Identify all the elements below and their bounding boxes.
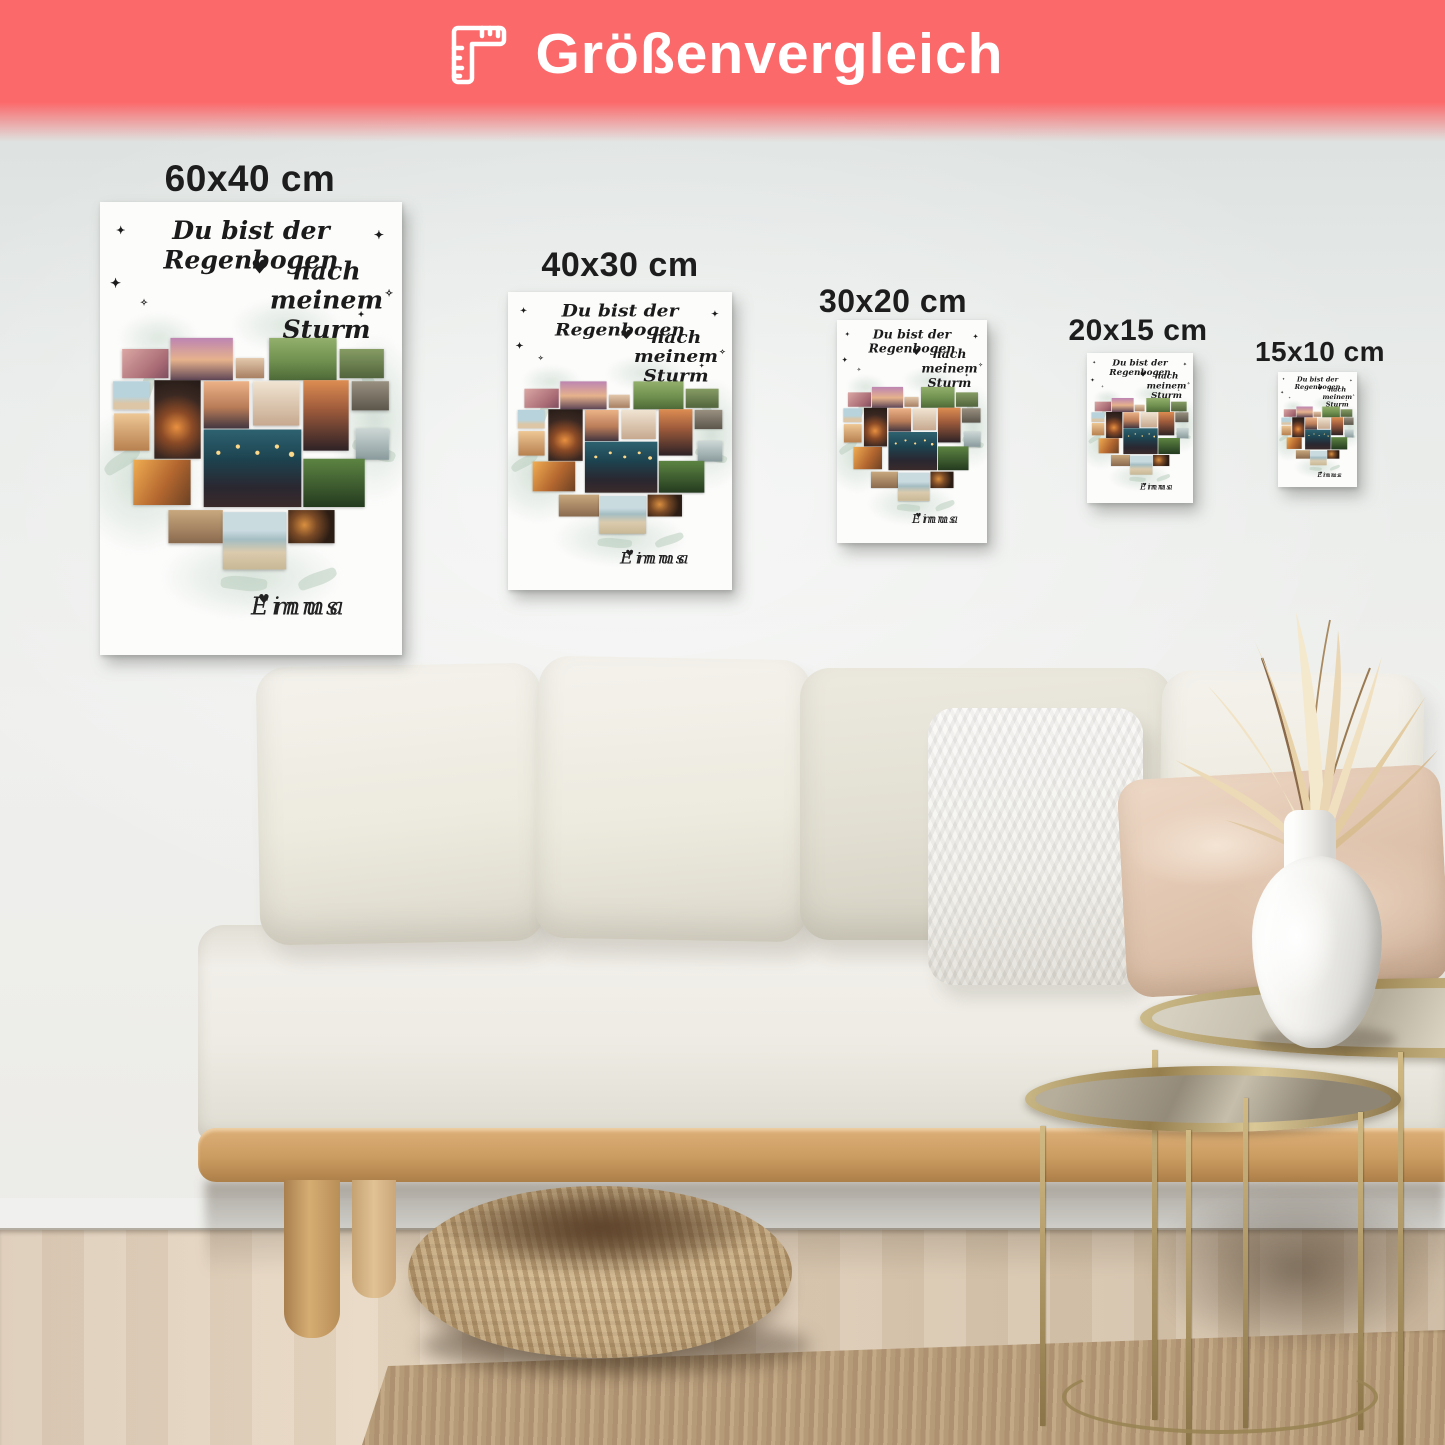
collage-photo [864,408,887,447]
collage-photo [340,349,384,378]
collage-photo [154,380,200,459]
collage-photo [1310,451,1327,466]
collage-photo [303,459,364,507]
collage-photo [1331,437,1347,449]
collage-photo [848,392,871,406]
collage-photo [585,410,619,441]
sparkle-ornament: ✦ [1091,378,1095,383]
collage-photo [695,410,723,429]
wicker-pouf [408,1186,792,1358]
collage-photo [956,392,978,406]
size-label-60x40: 60x40 cm [130,158,370,200]
collage-photo [352,381,389,410]
sparkle-ornament: ✧ [140,299,148,309]
collage-photo [1318,417,1330,428]
collage-photo [609,395,630,408]
collage-photo [938,408,961,443]
collage-photo [872,387,903,408]
collage-photo [114,413,149,450]
collage-photo [854,447,883,469]
heart-icon: ♥ [1140,371,1146,378]
collage-photo [518,410,545,429]
size-label-40x30: 40x30 cm [500,246,740,285]
back-cushion [535,656,812,943]
collage-photo [898,473,930,501]
poster-60x40: ✦ ✧ ✦ ✦ ✧ ✦ Du bist der Regenbogen nach … [100,202,402,655]
sparkle-ornament: ✦ [1281,391,1284,395]
collage-photo [236,358,264,378]
poster-content: ✦ ✧ ✦ ✦ ✧ ✦ Du bist der Regenbogen nach … [837,320,987,543]
collage-photo [170,338,232,380]
sparkle-ornament: ✦ [110,276,121,291]
poster-title: ✦ ✧ ✦ ✦ ✧ ✦ Du bist der Regenbogen nach … [100,202,402,335]
collage-photo [938,446,969,470]
collage-photo [1106,412,1122,438]
collage-photo [889,432,938,470]
collage-photo [905,397,919,407]
collage-photo [204,430,302,508]
collage-photo [633,381,683,409]
sparkle-ornament: ✧ [857,368,861,373]
collage-photo [1305,430,1331,450]
poster-content: ✦ ✧ ✦ ✦ ✧ ✦ Du bist der Regenbogen nach … [1278,372,1357,487]
collage-photo [1153,455,1169,466]
collage-photo [1158,412,1174,435]
collage-photo [1141,412,1157,427]
collage-photo [1123,428,1157,454]
back-cushion [256,663,546,946]
poster-title: ✦ ✧ ✦ ✦ ✧ ✦ Du bist der Regenbogen nach … [837,320,987,385]
poster-20x15: ✦ ✧ ✦ ✦ ✧ ✦ Du bist der Regenbogen nach … [1087,353,1193,503]
collage-photo [1305,417,1317,429]
collage-photo [1092,412,1105,421]
couch-leg [352,1180,396,1298]
collage-photo [1287,437,1302,449]
collage-photo [1292,417,1304,437]
collage-photo [269,338,336,380]
collage-photo [686,389,719,408]
collage-photo [1092,423,1104,435]
couch-leg [284,1180,340,1338]
collage-photo [122,349,168,378]
collage-photo [1314,412,1321,417]
poster-canvas: ✦ ✧ ✦ ✦ ✧ ✦ Du bist der Regenbogen nach … [100,202,402,655]
collage-photo [548,409,582,461]
collage-photo [1111,455,1130,466]
poster-title: ✦ ✧ ✦ ✦ ✧ ✦ Du bist der Regenbogen nach … [508,292,732,379]
collage-photo [585,442,657,493]
table-leg [1398,1052,1403,1445]
poster-content: ✦ ✧ ✦ ✦ ✧ ✦ Du bist der Regenbogen nach … [1087,353,1193,503]
collage-photo [844,424,862,442]
collage-photo [698,441,723,462]
collage-photo [1296,450,1310,458]
collage-photo [871,472,898,488]
size-comparison-banner: Größenvergleich [0,0,1445,142]
poster-canvas: ✦ ✧ ✦ ✦ ✧ ✦ Du bist der Regenbogen nach … [508,292,732,590]
collage-photo [1281,417,1290,424]
sparkle-ornament: ✧ [1101,385,1104,388]
collage-photo [168,510,222,543]
knit-pillow [928,708,1143,985]
poster-15x10: ✦ ✧ ✦ ✦ ✧ ✦ Du bist der Regenbogen nach … [1278,372,1357,487]
collage-photo [518,431,544,456]
poster-canvas: ✦ ✧ ✦ ✦ ✧ ✦ Du bist der Regenbogen nach … [1278,372,1357,487]
collage-photo [1282,426,1291,435]
size-label-30x20: 30x20 cm [773,283,1013,320]
collage-photo [621,410,655,439]
collage-photo [204,381,249,428]
banner-title: Größenvergleich [536,18,1004,90]
collage-photo [913,408,936,430]
collage-photo [659,461,705,493]
collage-photo [113,381,149,409]
collage-photo [599,496,646,534]
collage-photo [1112,398,1134,412]
collage-photo [356,429,389,460]
poster-canvas: ✦ ✧ ✦ ✦ ✧ ✦ Du bist der Regenbogen nach … [837,320,987,543]
collage-photo [1130,456,1152,475]
collage-photo [1123,412,1139,428]
collage-photo [1284,409,1296,416]
collage-photo [659,409,693,455]
table-leg [1040,1126,1045,1426]
collage-photo [1171,402,1187,412]
collage-photo [559,495,599,517]
couch-wood-frame [198,1128,1445,1182]
collage-photo [1327,450,1339,458]
heart-icon: ♥ [1317,386,1321,392]
sparkle-ornament: ✦ [842,357,847,364]
collage-photo [1341,409,1353,416]
collage-photo [133,460,190,505]
collage-photo [560,381,606,409]
collage-photo [1175,412,1188,422]
corner-ruler-icon [442,18,514,90]
sparkle-ornament: ✧ [1289,397,1291,400]
sparkle-ornament: ✦ [515,341,523,351]
collage-photo [648,495,682,517]
collage-photo [964,432,981,447]
collage-photo [1146,398,1170,412]
collage-photo [1095,402,1111,412]
poster-30x20: ✦ ✧ ✦ ✦ ✧ ✦ Du bist der Regenbogen nach … [837,320,987,543]
collage-photo [844,408,862,422]
collage-photo [1331,417,1343,435]
sparkle-ornament: ✧ [538,356,544,363]
collage-photo [889,408,912,431]
collage-photo [524,389,558,408]
collage-photo [1135,405,1145,412]
collage-photo [223,512,286,569]
poster-title: ✦ ✧ ✦ ✦ ✧ ✦ Du bist der Regenbogen nach … [1087,353,1193,397]
collage-photo [288,510,334,543]
collage-photo [962,408,981,422]
heart-icon: ♥ [620,328,633,343]
collage-photo [1322,407,1340,418]
nesting-table-small-glass [1035,1075,1391,1123]
collage-photo [533,462,576,492]
collage-photo [1099,438,1119,453]
poster-canvas: ✦ ✧ ✦ ✦ ✧ ✦ Du bist der Regenbogen nach … [1087,353,1193,503]
collage-photo [253,381,299,425]
heart-icon: ♥ [251,256,268,278]
poster-40x30: ✦ ✧ ✦ ✦ ✧ ✦ Du bist der Regenbogen nach … [508,292,732,590]
collage-photo [303,380,348,450]
collage-photo [1158,438,1180,454]
collage-photo [1344,417,1354,424]
collage-photo [921,387,955,408]
poster-title: ✦ ✧ ✦ ✦ ✧ ✦ Du bist der Regenbogen nach … [1278,372,1357,406]
collage-photo [1177,428,1189,438]
table-stretcher-ring [1062,1360,1378,1434]
poster-content: ✦ ✧ ✦ ✦ ✧ ✦ Du bist der Regenbogen nach … [508,292,732,590]
size-label-15x10: 15x10 cm [1200,336,1440,368]
poster-content: ✦ ✧ ✦ ✦ ✧ ✦ Du bist der Regenbogen nach … [100,202,402,655]
collage-photo [1296,407,1312,418]
scene: 60x40 cm 40x30 cm 30x20 cm 20x15 cm 15x1… [0,0,1445,1445]
heart-icon: ♥ [912,347,921,358]
collage-photo [931,472,954,488]
